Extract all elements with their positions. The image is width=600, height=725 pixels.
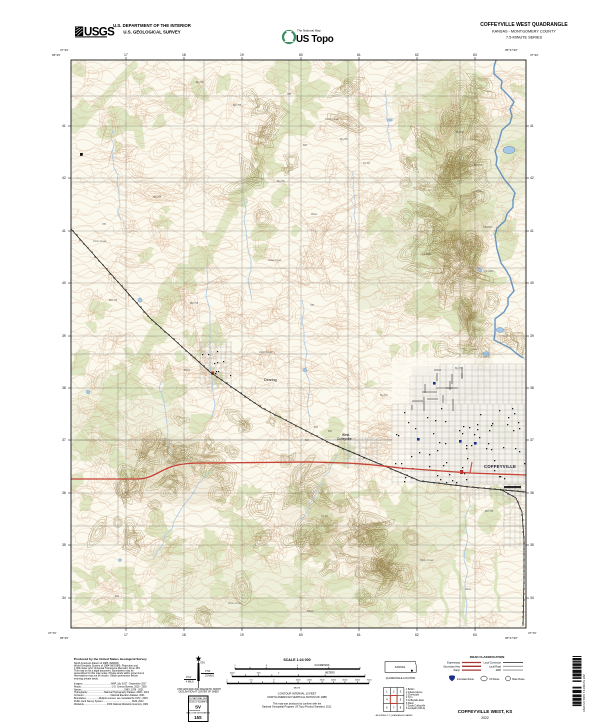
svg-text:37°15': 37°15' [48,631,57,635]
svg-text:WELL: WELL [465,588,472,591]
svg-text:785: 785 [102,223,107,226]
svg-text:Names.........................: Names...................................… [74,689,144,691]
svg-text:CONTOUR INTERVAL 10 FEET: CONTOUR INTERVAL 10 FEET [278,692,317,696]
svg-text:UTM GRID AND 2022 MAGNETIC NOR: UTM GRID AND 2022 MAGNETIC NORTH [177,688,221,691]
svg-text:800: 800 [115,595,120,598]
svg-text:Local Connector: Local Connector [484,662,502,665]
svg-text:19: 19 [240,633,244,637]
svg-text:Big Hill: Big Hill [380,394,388,397]
svg-text:37°30': 37°30' [60,48,69,52]
svg-text:17: 17 [124,53,128,57]
svg-text:100,000-m SQUARE ID: 100,000-m SQUARE ID [188,701,209,704]
svg-text:18: 18 [182,633,186,637]
svg-text:38: 38 [62,386,66,390]
svg-text:BM 755: BM 755 [485,510,494,513]
svg-text:1°52': 1°52' [205,670,211,673]
svg-text:4000: 4000 [331,680,337,682]
svg-text:17: 17 [124,633,128,637]
svg-text:8 Lenapah (OKLA): 8 Lenapah (OKLA) [406,707,425,710]
svg-text:Onion Creek: Onion Creek [228,602,242,605]
svg-text:4 Tyro: 4 Tyro [406,696,413,699]
svg-text:95°37'30": 95°37'30" [505,48,518,52]
svg-text:Produced by the United States: Produced by the United States Geological… [74,657,147,661]
svg-text:2000: 2000 [307,680,313,682]
svg-text:The National Map: The National Map [297,29,321,33]
svg-text:35: 35 [62,543,66,547]
svg-text:37: 37 [62,438,66,442]
svg-text:95°45': 95°45' [60,636,69,640]
svg-text:Local Road: Local Road [489,665,502,668]
svg-text:2022: 2022 [481,716,489,720]
svg-text:Big Hill: Big Hill [277,180,285,183]
svg-text:6 Wann: 6 Wann [406,703,415,705]
svg-text:Ramp: Ramp [454,669,461,672]
svg-text:CR 2500: CR 2500 [484,270,494,273]
svg-text:QUADRANGLE LOCATION: QUADRANGLE LOCATION [386,677,416,680]
svg-text:CR 2500: CR 2500 [422,253,432,256]
svg-text:Secondary Hwy: Secondary Hwy [443,665,461,668]
svg-text:61: 61 [357,53,361,57]
svg-text:3000: 3000 [320,680,326,682]
svg-text:WELL: WELL [476,190,483,193]
svg-text:95°45': 95°45' [52,53,61,57]
svg-text:Dearing: Dearing [264,378,277,382]
svg-text:785: 785 [287,93,292,96]
svg-text:60: 60 [299,633,303,637]
svg-text:Wetlands......................: Wetlands................................… [74,703,149,706]
svg-text:800: 800 [314,426,319,429]
svg-text:METERS: METERS [325,673,335,675]
svg-text:62: 62 [415,633,419,637]
svg-text:95°37'30": 95°37'30" [505,636,518,640]
svg-text:Hydrography...................: Hydrography..........................Nat… [74,691,150,694]
svg-text:800: 800 [328,430,333,433]
svg-text:42: 42 [530,176,534,180]
svg-text:33 MILS: 33 MILS [205,675,214,678]
svg-text:Big Hill: Big Hill [455,367,463,370]
svg-text:39: 39 [62,334,66,338]
svg-text:KANSAS: KANSAS [395,665,406,669]
svg-text:USGS US TOPO 7.5-MINUTE MAP: USGS US TOPO 7.5-MINUTE MAP [583,674,586,712]
svg-text:US Route: US Route [489,678,500,681]
svg-text:BM 755: BM 755 [233,104,242,107]
svg-text:Big Hill: Big Hill [456,131,464,134]
svg-text:0°12': 0°12' [186,676,192,679]
svg-text:WELL: WELL [184,369,191,372]
svg-text:Co Rd: Co Rd [363,162,370,165]
svg-text:SCALE 1:24 000: SCALE 1:24 000 [283,658,310,662]
svg-text:41: 41 [530,124,534,128]
svg-text:Boundaries....................: Boundaries....................Multiple s… [74,697,148,700]
svg-text:18: 18 [182,53,186,57]
svg-text:7000: 7000 [367,680,373,682]
svg-text:COFFEYVILLE WEST, KS: COFFEYVILLE WEST, KS [458,709,513,714]
svg-text:KILOMETERS: KILOMETERS [315,665,330,667]
svg-text:800: 800 [305,439,310,442]
svg-text:GN: GN [201,661,205,665]
svg-text:1 Bolton: 1 Bolton [406,688,415,691]
svg-text:37°15': 37°15' [528,631,537,635]
svg-text:41: 41 [62,124,66,128]
svg-text:CR 2500: CR 2500 [483,226,493,229]
svg-text:15S: 15S [194,715,202,720]
svg-text:1000: 1000 [296,680,302,682]
svg-text:ROAD CLASSIFICATION: ROAD CLASSIFICATION [470,655,505,659]
svg-text:40: 40 [530,281,534,285]
svg-text:Onion Creek: Onion Creek [268,259,282,262]
svg-text:4WD: 4WD [496,669,502,672]
svg-text:SV: SV [195,705,201,710]
svg-text:5 Coffeyville East: 5 Coffeyville East [406,699,424,702]
svg-text:KANSAS - MONTGOMERY COUNTY: KANSAS - MONTGOMERY COUNTY [492,30,556,34]
svg-text:4 MILS: 4 MILS [186,681,194,684]
svg-text:BM 755: BM 755 [153,196,162,199]
svg-text:34: 34 [530,596,534,600]
svg-text:40: 40 [62,281,66,285]
svg-text:Imagery.......................: Imagery.................................… [74,683,147,686]
svg-text:National Geospatial Program US: National Geospatial Program US Topo Prod… [262,706,332,709]
svg-text:63: 63 [473,53,477,57]
svg-text:BM 755: BM 755 [474,164,483,167]
svg-text:U.S. DEPARTMENT OF THE INTERIO: U.S. DEPARTMENT OF THE INTERIOR [113,23,192,28]
svg-text:WELL: WELL [307,610,314,613]
svg-text:60: 60 [299,53,303,57]
svg-text:Big Hill: Big Hill [196,81,204,84]
svg-text:5000: 5000 [342,680,348,682]
svg-text:Onion Creek: Onion Creek [420,559,434,562]
svg-text:DECLINATION AT CENTER OF SHEET: DECLINATION AT CENTER OF SHEET [179,691,220,694]
svg-text:36: 36 [62,491,66,495]
svg-text:Expressway: Expressway [447,662,461,665]
svg-text:COFFEYVILLE WEST QUADRANGLE: COFFEYVILLE WEST QUADRANGLE [480,22,568,28]
svg-text:BM 755: BM 755 [190,302,199,305]
svg-text:19: 19 [240,53,244,57]
svg-text:MILES: MILES [294,688,301,690]
svg-text:36: 36 [530,491,534,495]
svg-text:Contours......................: Contours................................… [74,694,145,697]
svg-text:39: 39 [530,334,534,338]
svg-text:34: 34 [62,596,66,600]
svg-text:35: 35 [530,543,534,547]
svg-text:Roads.........................: Roads...................................… [74,685,147,688]
svg-text:63: 63 [473,633,477,637]
svg-text:37°30': 37°30' [530,53,539,57]
svg-text:800: 800 [303,144,308,147]
svg-text:ADJOINING 7.5' QUADRANGLE NAME: ADJOINING 7.5' QUADRANGLE NAMES [376,714,414,717]
svg-text:State Route: State Route [512,678,525,681]
svg-text:6000: 6000 [355,680,361,682]
svg-text:Onion Creek: Onion Creek [93,240,107,243]
svg-text:3 Cherryvale: 3 Cherryvale [406,694,420,697]
svg-text:42: 42 [62,176,66,180]
svg-text:entering private lands.: entering private lands. [74,677,99,680]
svg-text:7 South Coffeyville: 7 South Coffeyville [406,705,426,708]
svg-text:Onion Creek: Onion Creek [259,351,273,354]
svg-text:785: 785 [310,304,315,307]
svg-text:COFFEYVILLE: COFFEYVILLE [484,464,516,469]
svg-text:61: 61 [357,633,361,637]
svg-text:41: 41 [530,229,534,233]
svg-text:37: 37 [530,438,534,442]
svg-text:GRID ZONE DESIGNATION: GRID ZONE DESIGNATION [186,711,211,714]
svg-text:62: 62 [415,53,419,57]
svg-text:WELL: WELL [311,213,318,216]
svg-text:BM 755: BM 755 [109,299,118,302]
svg-text:U.S. GEOLOGICAL SURVEY: U.S. GEOLOGICAL SURVEY [123,30,180,35]
svg-text:Big Hill: Big Hill [340,138,348,141]
svg-text:1000: 1000 [230,673,236,675]
svg-text:7.5-MINUTE SERIES: 7.5-MINUTE SERIES [506,36,543,40]
svg-text:2 Independence: 2 Independence [406,692,423,694]
svg-text:38: 38 [530,386,534,390]
svg-text:Interstate Route: Interstate Route [457,678,475,681]
svg-text:US Topo: US Topo [296,34,334,45]
svg-text:Coffeyville: Coffeyville [337,437,352,441]
svg-text:NORTH AMERICAN VERTICAL DATUM: NORTH AMERICAN VERTICAL DATUM OF 1988 [267,695,327,699]
svg-text:U.S. NATIONAL GRID: U.S. NATIONAL GRID [188,697,208,700]
svg-text:Onion Creek: Onion Creek [325,118,339,121]
svg-text:41: 41 [62,229,66,233]
svg-text:Public Land Survey System.....: Public Land Survey System...............… [74,700,144,703]
svg-text:Co Rd: Co Rd [321,515,328,518]
